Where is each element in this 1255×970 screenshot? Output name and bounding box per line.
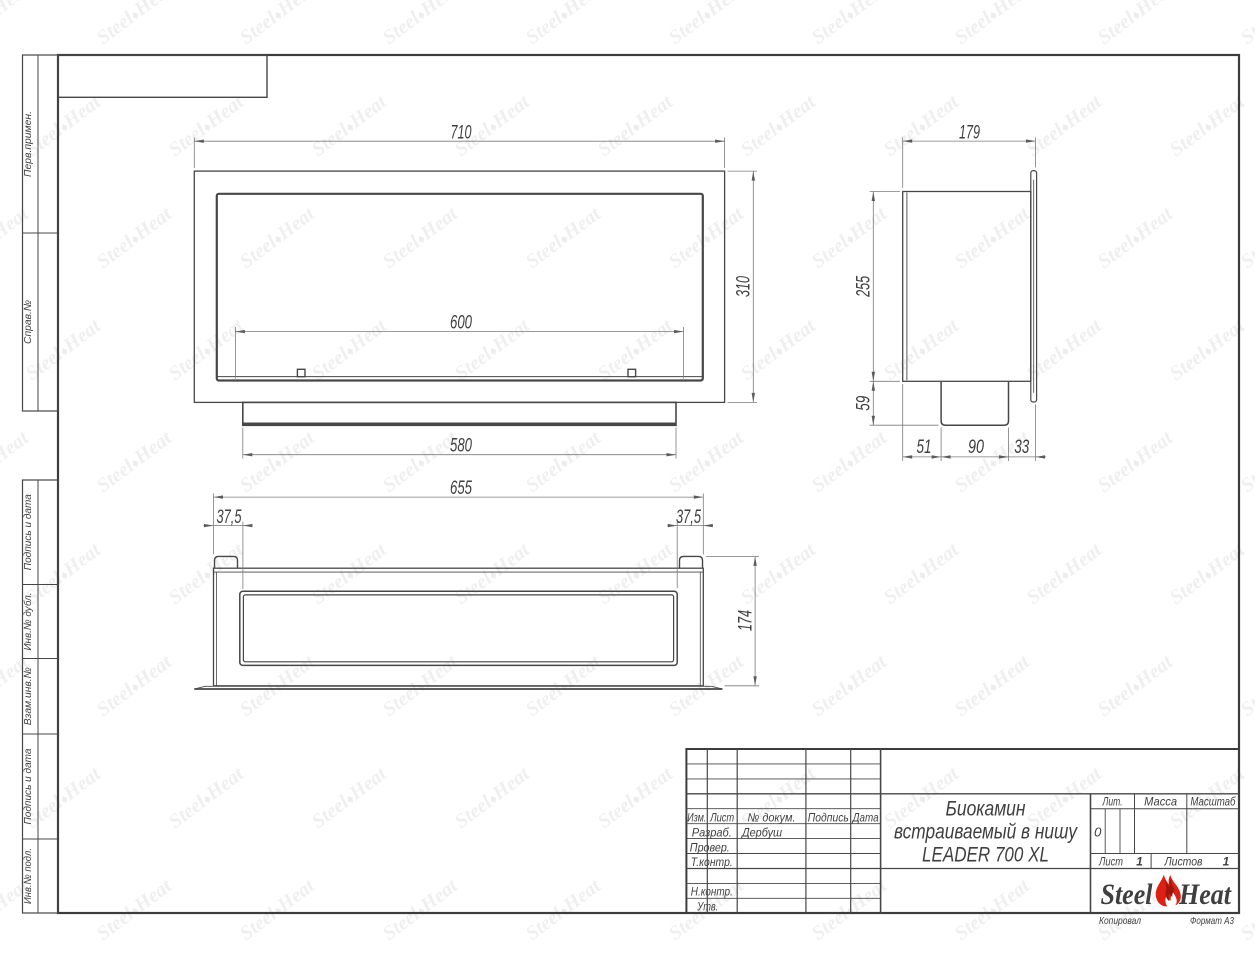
svg-text:№ докум.: № докум. [748,811,796,825]
svg-text:Масса: Масса [1144,795,1177,809]
svg-text:580: 580 [450,436,472,457]
svg-text:Взам.инв.№: Взам.инв.№ [22,667,34,725]
svg-text:37,5: 37,5 [676,507,701,528]
svg-text:179: 179 [959,122,980,143]
svg-text:встраиваемый в нишу: встраиваемый в нишу [894,821,1078,844]
svg-text:LEADER 700 XL: LEADER 700 XL [922,844,1049,867]
svg-text:Копировал: Копировал [1099,915,1141,927]
svg-text:255: 255 [854,276,875,298]
svg-text:655: 655 [450,478,472,499]
svg-text:Лист: Лист [1098,854,1123,868]
svg-text:Перв.примен.: Перв.примен. [22,111,34,177]
svg-text:1: 1 [1223,854,1230,868]
svg-text:Лист: Лист [709,811,734,825]
svg-text:Листов: Листов [1164,854,1203,868]
svg-text:Инв.№ подл.: Инв.№ подл. [22,848,34,904]
svg-text:Изм.: Изм. [687,811,706,825]
svg-text:710: 710 [451,122,472,143]
svg-text:59: 59 [854,395,875,410]
svg-text:Heat: Heat [1178,878,1232,911]
svg-text:174: 174 [735,610,756,631]
svg-text:Лит.: Лит. [1102,795,1123,809]
svg-text:Биокамин: Биокамин [946,798,1026,821]
svg-text:Дербуш: Дербуш [740,825,782,839]
svg-text:Steel: Steel [1101,878,1154,911]
svg-text:310: 310 [734,276,755,297]
svg-text:Подпись: Подпись [808,811,849,825]
svg-text:600: 600 [450,312,472,333]
svg-text:Провер.: Провер. [690,840,730,854]
svg-text:Разраб.: Разраб. [692,825,732,839]
svg-text:Масштаб: Масштаб [1190,795,1236,809]
svg-text:Инв.№ дубл.: Инв.№ дубл. [22,593,34,651]
svg-text:90: 90 [968,437,984,458]
svg-text:Дата: Дата [851,811,879,825]
svg-text:Формат А3: Формат А3 [1190,915,1234,927]
svg-text:Подпись и дата: Подпись и дата [22,748,34,824]
svg-text:Н.контр.: Н.контр. [691,885,733,899]
svg-text:Справ.№: Справ.№ [22,300,34,344]
svg-text:1: 1 [1136,854,1143,868]
svg-text:51: 51 [917,437,932,458]
svg-text:0: 0 [1094,825,1102,840]
svg-text:Т.контр.: Т.контр. [691,855,733,869]
svg-text:Подпись и дата: Подпись и дата [22,494,34,570]
svg-text:Утв.: Утв. [697,899,719,913]
svg-text:37,5: 37,5 [217,507,242,528]
svg-text:33: 33 [1014,437,1029,458]
